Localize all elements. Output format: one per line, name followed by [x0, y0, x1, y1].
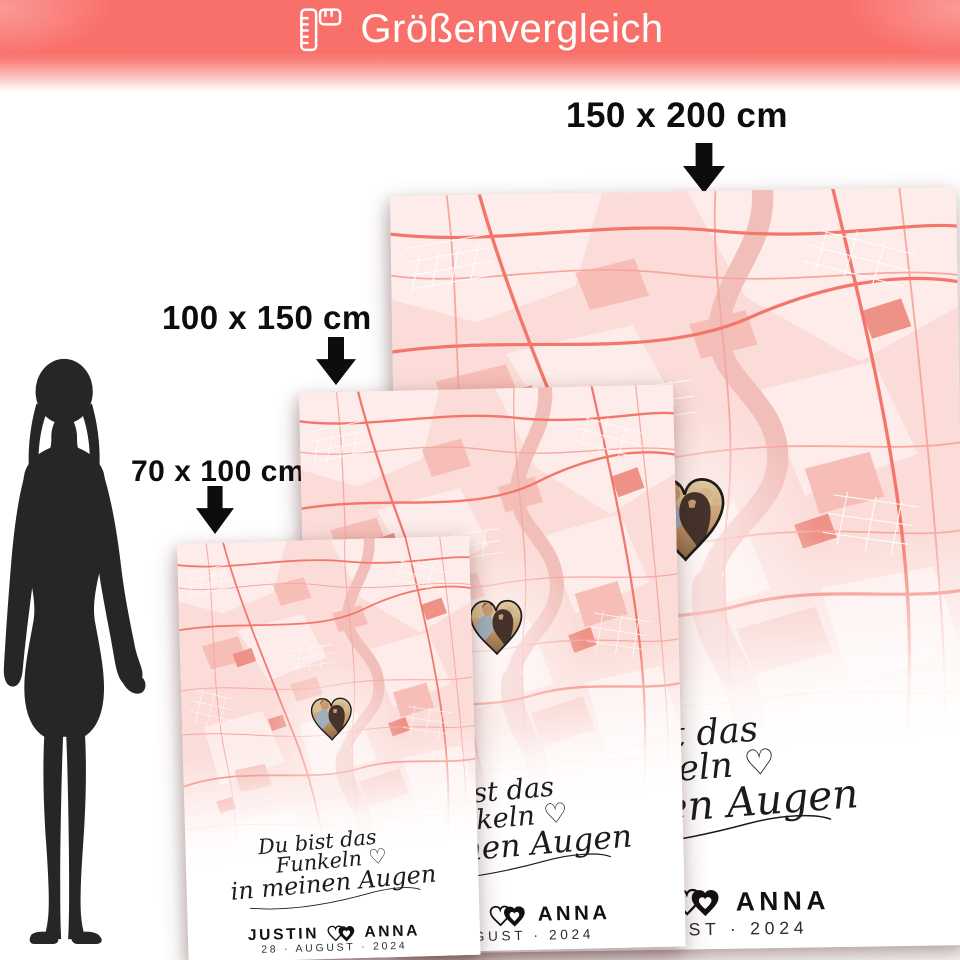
female-silhouette	[2, 352, 152, 944]
name-second: ANNA	[537, 902, 610, 927]
size-comparison-graphic: Größenvergleich 150 x 200 cm 100 x 150 c…	[0, 0, 960, 960]
down-arrow-icon	[196, 486, 234, 534]
size-label-70x100: 70 x 100 cm	[131, 455, 305, 489]
name-second: ANNA	[364, 922, 420, 942]
name-first: JUSTIN	[248, 925, 320, 945]
heart-photo	[466, 593, 525, 659]
size-label-100x150: 100 x 150 cm	[162, 299, 372, 337]
poster-70x100: Du bist das Funkeln ♡ in meinen Augen JU…	[177, 536, 481, 960]
heart-photo	[308, 692, 355, 744]
page-title: Größenvergleich	[360, 7, 663, 52]
double-heart-icon	[327, 924, 357, 943]
ruler-icon	[296, 3, 344, 55]
size-label-150x200: 150 x 200 cm	[566, 96, 788, 136]
down-arrow-icon	[683, 143, 725, 193]
down-arrow-icon	[316, 337, 356, 385]
name-second: ANNA	[735, 885, 830, 917]
header-banner: Größenvergleich	[0, 0, 960, 96]
double-heart-icon	[489, 904, 528, 928]
